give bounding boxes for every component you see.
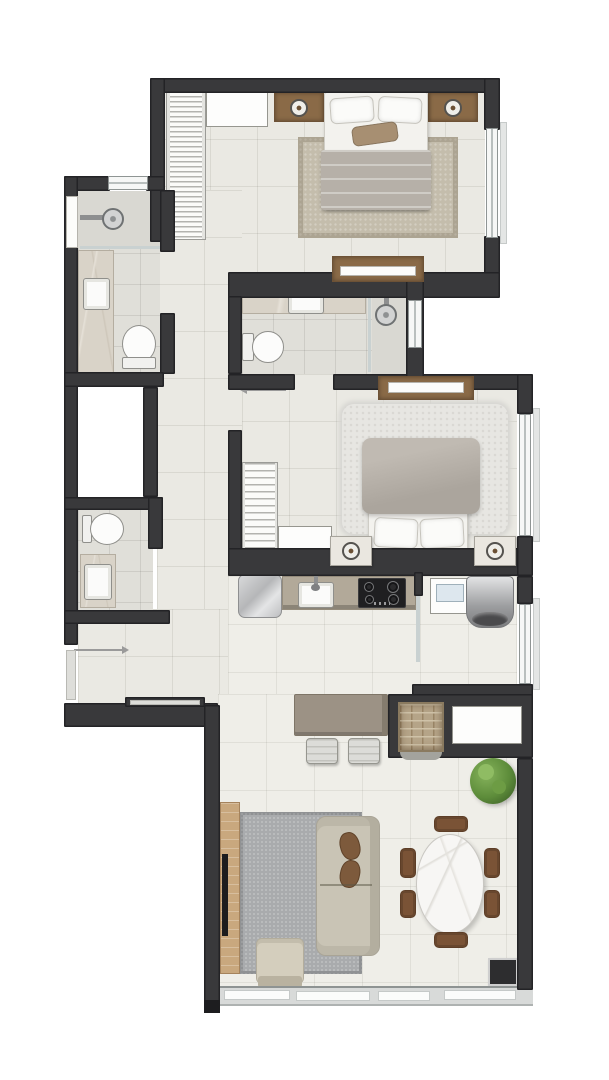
wardrobe-bedroom2-top: [388, 382, 464, 393]
railing-glass-panel: [378, 991, 430, 1001]
railing-glass-panel: [444, 990, 516, 1000]
wall-living-left-cap: [204, 1000, 220, 1013]
shower-head-master: [102, 208, 124, 230]
wall-bath2-bottom-left: [228, 374, 295, 390]
burner: [387, 581, 399, 593]
dining-table: [416, 834, 484, 934]
window-shower2: [408, 300, 422, 348]
sill-master-window: [500, 122, 507, 244]
floor-shower2: [372, 288, 408, 374]
stool: [306, 738, 338, 764]
wall-bath-top-right: [146, 176, 165, 191]
cooktop-controls: [374, 602, 390, 605]
wall-bath-right-lower: [160, 313, 175, 374]
wall-master-top: [150, 78, 500, 93]
shaft-void: [78, 387, 143, 497]
vanity-master: [78, 250, 114, 374]
closet-bedroom2: [242, 462, 278, 560]
entry-side-door: [66, 650, 76, 700]
floor-plan-canvas: [0, 0, 609, 1080]
sink-lavabo: [84, 564, 112, 600]
toilet-bath2-bowl: [252, 331, 284, 363]
door-slide-arrow-entry: [74, 649, 122, 651]
dining-chair: [400, 890, 416, 918]
sill-bedroom2-window: [533, 408, 540, 542]
plant: [470, 758, 516, 804]
window-bedroom2: [519, 414, 531, 536]
toilet-lavabo-bowl: [90, 513, 124, 545]
closet-master-box: [206, 92, 268, 127]
dining-chair: [484, 890, 500, 918]
dresser-master-top: [340, 266, 416, 276]
wall-living-right: [517, 758, 533, 990]
blanket-master: [321, 150, 431, 210]
dining-chair: [434, 816, 468, 832]
wall-lavabo-right: [148, 497, 163, 549]
shower-glass-master: [80, 246, 160, 249]
washer-door: [472, 612, 508, 626]
wall-living-left: [204, 705, 220, 1013]
island-counter: [294, 694, 388, 736]
plant-highlight: [478, 764, 494, 780]
fire-pit-table: [488, 958, 518, 986]
laundry-glass-door: [416, 596, 420, 662]
pillow-master: [377, 96, 422, 124]
wall-shaft-right: [143, 387, 158, 497]
blanket-bedroom2: [362, 438, 480, 514]
burner: [364, 582, 374, 592]
dining-chair: [434, 932, 468, 948]
lamp-master-left: [290, 99, 308, 117]
lamp-bedroom2-left: [342, 542, 360, 560]
wall-laundry-stub: [414, 572, 423, 596]
dining-chair: [484, 848, 500, 878]
wall-master-right-upper: [484, 78, 500, 130]
window-laundry: [519, 604, 531, 684]
toilet-master-tank: [122, 357, 156, 369]
bath-wall-niche: [66, 196, 78, 248]
plant-highlight: [492, 780, 506, 794]
dining-chair: [400, 848, 416, 878]
burner: [365, 595, 374, 604]
pillow-master: [329, 95, 375, 124]
pillow-bedroom2: [419, 517, 465, 549]
wall-lavabo-bottom: [64, 610, 170, 624]
pillow-bedroom2: [373, 517, 419, 549]
tv: [222, 854, 228, 936]
window-master-right: [486, 128, 498, 238]
railing-glass-panel: [296, 991, 370, 1001]
wall-bath-right-upper: [160, 190, 175, 252]
barbecue-grill: [398, 702, 444, 752]
lamp-master-right: [444, 99, 462, 117]
counter-pass-through: [452, 706, 522, 744]
wall-bath2-left: [228, 296, 242, 374]
entry-door: [130, 700, 200, 705]
window-master-bath: [108, 176, 148, 190]
lamp-bedroom2-right: [486, 542, 504, 560]
arrowhead-right: [122, 646, 133, 654]
wall-bath-bottom: [64, 372, 164, 387]
sill-laundry-window: [533, 598, 540, 690]
wall-laundry-right-upper: [517, 576, 533, 604]
grill-ledge: [400, 752, 442, 760]
sofa-seam: [320, 884, 372, 886]
laundry-sink-basin: [436, 584, 464, 602]
kitchen-faucet-base: [311, 584, 320, 591]
railing-glass-panel: [224, 990, 290, 1000]
stool: [348, 738, 380, 764]
shower2-head: [375, 304, 397, 326]
wall-bedroom2-right-lower: [517, 536, 533, 576]
sink-master: [83, 278, 110, 310]
refrigerator: [238, 574, 282, 618]
wall-bedroom2-right-upper: [517, 374, 533, 414]
